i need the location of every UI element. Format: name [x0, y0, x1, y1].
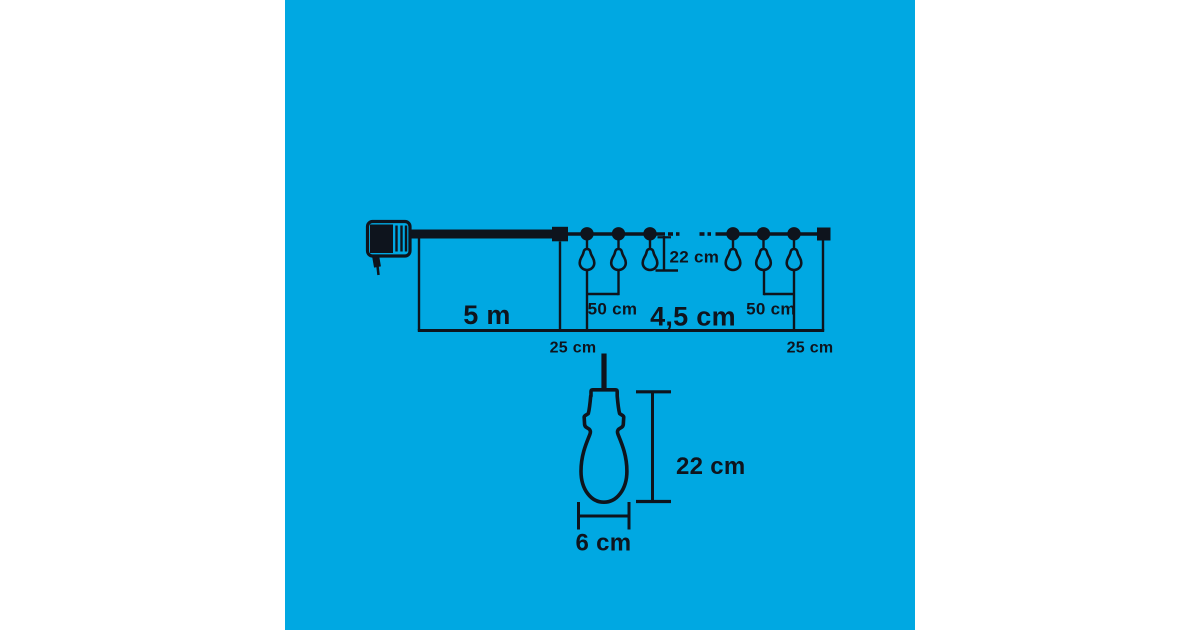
- bulb-socket: [643, 227, 656, 240]
- dim-label-offset-right: 25 cm: [787, 340, 834, 357]
- bulb-socket: [757, 227, 770, 240]
- dim-label-lead-length: 5 m: [463, 300, 510, 330]
- dim-label-spacing-left: 50 cm: [588, 300, 638, 319]
- bulb-socket: [580, 227, 593, 240]
- bulb-socket: [612, 227, 625, 240]
- dim-label-offset-left: 25 cm: [550, 340, 597, 357]
- dim-label-spacing-right: 50 cm: [746, 300, 796, 319]
- string-lights-dimension-diagram: 5 m 25 cm 50 cm 22 cm 4,5 cm 50 cm 25 cm…: [0, 0, 1200, 630]
- bulb-socket: [726, 227, 739, 240]
- bulb-socket: [787, 227, 800, 240]
- plug-prong: [376, 256, 378, 268]
- end-cap: [817, 228, 831, 241]
- dim-label-bulb-width: 6 cm: [576, 530, 632, 557]
- dim-label-bulb-height: 22 cm: [676, 453, 746, 480]
- dim-label-drop-height: 22 cm: [670, 248, 720, 267]
- connector-block: [552, 227, 568, 242]
- dim-label-total-length: 4,5 cm: [650, 302, 736, 332]
